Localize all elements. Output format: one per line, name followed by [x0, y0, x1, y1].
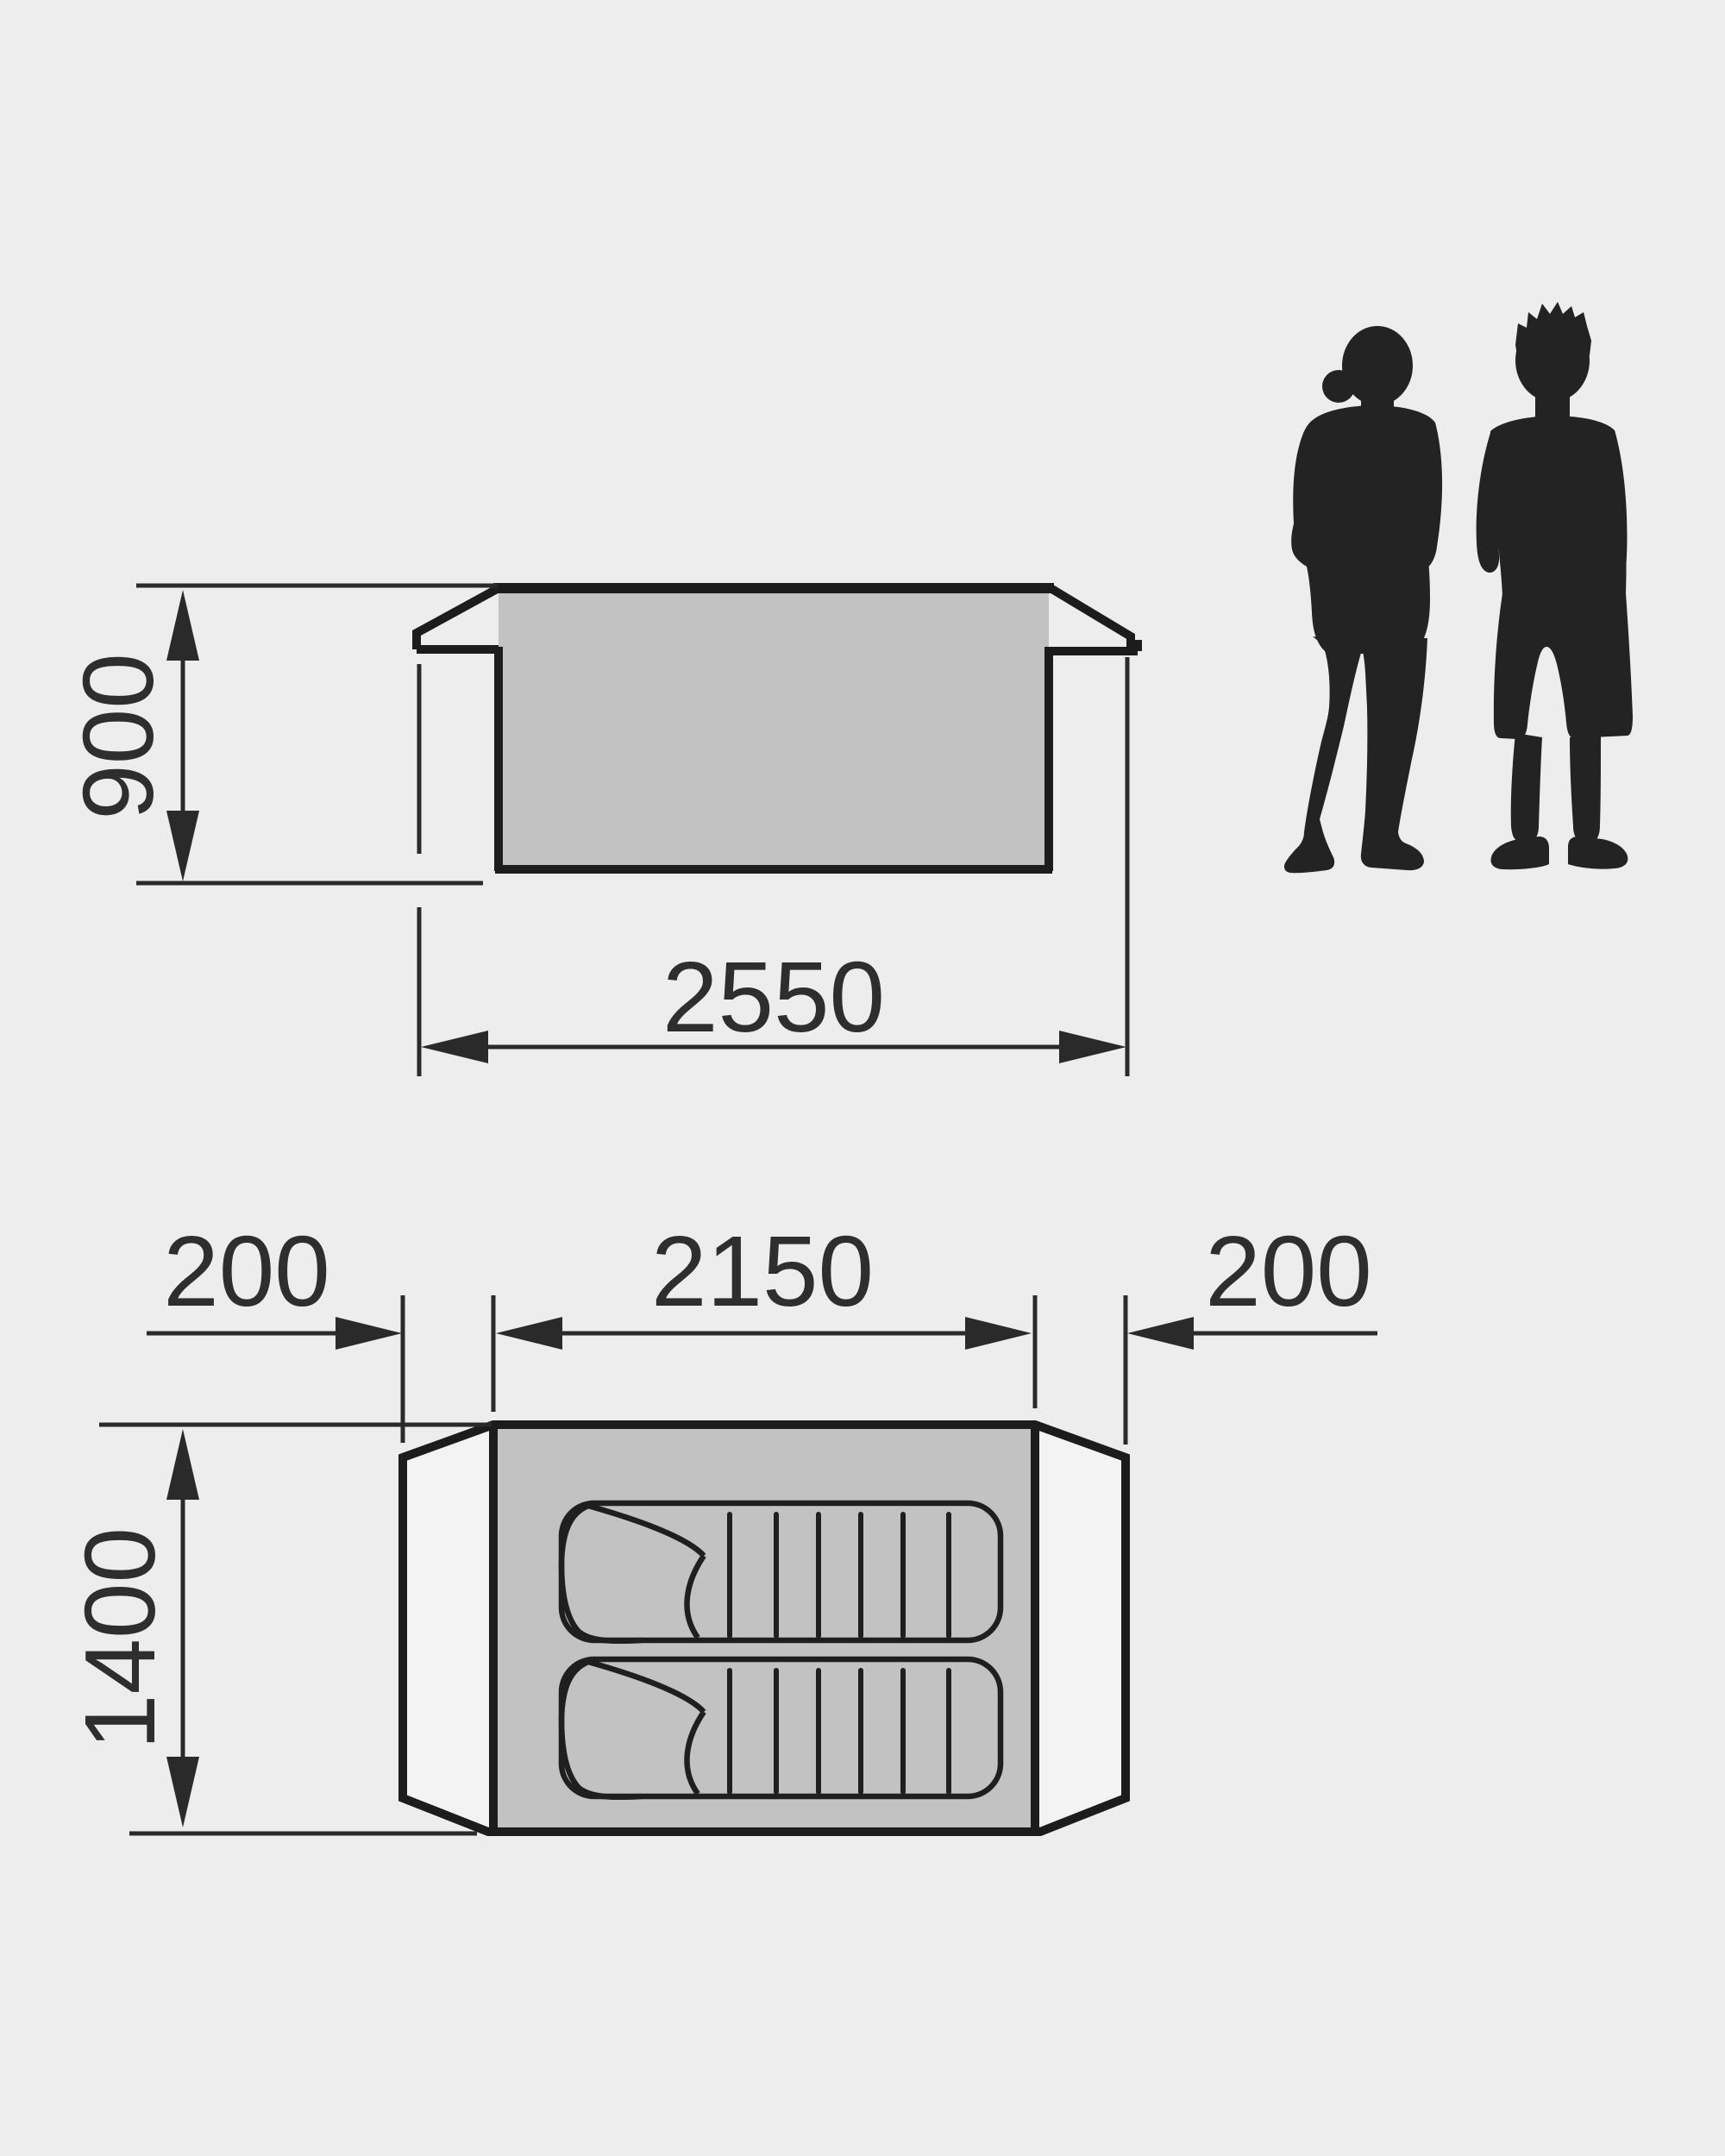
side-height-label: 900: [68, 653, 168, 820]
side-length-label: 2550: [662, 947, 885, 1047]
man-shorts: [1494, 593, 1633, 739]
plan-right-porch-label: 200: [1205, 1221, 1372, 1321]
diagram-canvas: [0, 0, 1725, 2156]
plan-inner-length-label: 2150: [651, 1221, 874, 1321]
arrowhead-right: [965, 1317, 1032, 1350]
woman-silhouette: [1284, 326, 1442, 873]
tent-right-slope: [1049, 588, 1138, 651]
people-silhouettes: [1284, 302, 1633, 873]
woman-torso: [1291, 405, 1442, 654]
man-left-shoe: [1491, 837, 1550, 869]
left-vestibule: [403, 1425, 493, 1832]
man-right-shoe: [1568, 837, 1628, 869]
woman-right-leg: [1345, 638, 1427, 870]
side-elevation-view: [417, 588, 1138, 871]
arrowhead-down: [166, 811, 199, 881]
tent-left-slope: [417, 588, 499, 649]
arrowhead-right: [1059, 1031, 1126, 1063]
arrowhead-down: [166, 1757, 199, 1827]
floor-plan-view: [403, 1425, 1126, 1832]
arrowhead-left: [1127, 1317, 1194, 1350]
woman-hair-bun: [1322, 370, 1355, 403]
right-vestibule: [1035, 1425, 1126, 1832]
man-hair: [1515, 302, 1591, 355]
arrowhead-left: [496, 1317, 562, 1350]
arrowhead-up: [166, 1429, 199, 1500]
plan-width-label: 1400: [70, 1527, 170, 1750]
man-right-arm: [1603, 430, 1628, 587]
dimension-900: [136, 586, 498, 883]
man-left-calf: [1511, 733, 1542, 843]
plan-left-porch-label: 200: [163, 1221, 330, 1321]
arrowhead-up: [166, 590, 199, 661]
man-right-calf: [1570, 735, 1601, 843]
tent-body-panel: [499, 588, 1049, 869]
arrowhead-left: [421, 1031, 488, 1063]
arrowhead-right: [336, 1317, 402, 1350]
woman-left-leg: [1284, 636, 1364, 873]
man-left-arm: [1477, 433, 1502, 573]
man-silhouette: [1477, 302, 1633, 869]
tent-dimension-diagram: 900 2550 200 2150 200 1400: [0, 0, 1725, 2156]
